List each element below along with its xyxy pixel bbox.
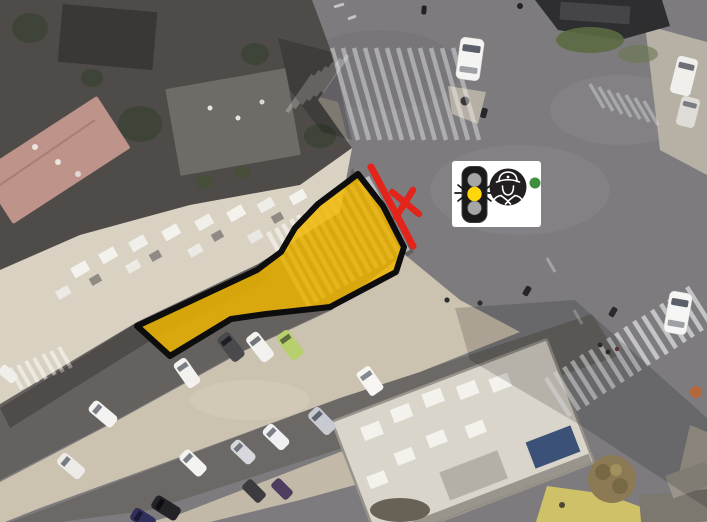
rooftop-object	[559, 502, 565, 508]
red-light-unlit	[468, 173, 482, 187]
rooftop-unit	[32, 144, 38, 150]
tree	[118, 106, 162, 142]
vegetation	[618, 45, 658, 63]
yellow-light-lit	[467, 187, 481, 201]
rooftop-unit	[75, 171, 81, 177]
aerial-photo	[0, 0, 707, 522]
tree	[12, 13, 48, 43]
rooftop-unit	[236, 116, 241, 121]
tree	[234, 166, 250, 178]
rooftop-charcoal	[58, 4, 158, 70]
cap-badge	[507, 176, 510, 179]
green-marker-dot	[530, 178, 541, 189]
rooftop-unit	[208, 106, 213, 111]
rooftop-unit	[55, 159, 61, 165]
vegetation	[370, 498, 430, 522]
aerial-map-view	[0, 0, 707, 522]
police-officer-icon	[490, 169, 527, 206]
traffic-signal-officer-badge[interactable]	[452, 161, 541, 227]
green-light-unlit	[468, 201, 482, 215]
tree	[241, 43, 269, 65]
tree	[195, 175, 213, 189]
sand-light-patch	[190, 380, 310, 420]
rooftop-unit	[260, 100, 265, 105]
tree-autumn	[588, 455, 636, 503]
tree	[81, 69, 103, 87]
vegetation	[556, 27, 624, 53]
